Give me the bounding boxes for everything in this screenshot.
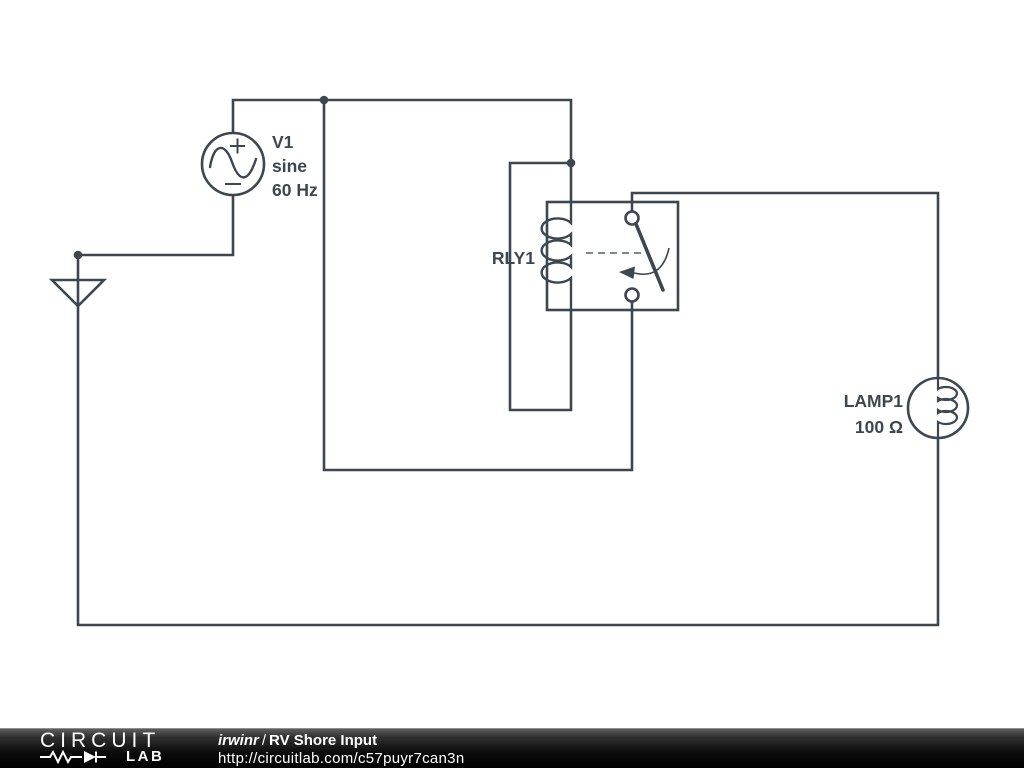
circuitlab-export-page: V1sine60 Hz RLY1 LAMP1100 Ω: [0, 0, 1024, 768]
wire-ground-to-v1: [78, 195, 233, 255]
diode-icon: [84, 751, 96, 763]
lamp-lamp1: [908, 378, 968, 438]
author-name: irwinr: [218, 732, 259, 749]
schematic-canvas: [0, 0, 1024, 728]
voltage-source-v1: [202, 133, 264, 195]
logo-word-circuit: CIRCUIT: [40, 730, 190, 751]
circuitlab-footer: CIRCUIT LAB irwinr/RV Shore Input http:/…: [0, 728, 1024, 768]
circuit-title: RV Shore Input: [269, 732, 377, 749]
switch-terminal-bottom: [626, 289, 639, 302]
relay-rly1: [542, 202, 678, 310]
relay-body: [547, 202, 678, 310]
circuit-url: http://circuitlab.com/c57puyr7can3n: [218, 750, 464, 768]
wire-coil-bottom-loop: [510, 163, 571, 410]
logo-word-lab: LAB: [126, 749, 164, 764]
junction-dot: [567, 159, 576, 168]
resistor-icon: [40, 752, 82, 762]
circuitlab-logo: CIRCUIT LAB: [40, 730, 190, 764]
wire-lamp-to-ground: [78, 255, 938, 625]
attribution-block: irwinr/RV Shore Input http://circuitlab.…: [218, 732, 464, 768]
author-title-separator: /: [259, 732, 269, 749]
switch-arrowhead: [619, 267, 635, 280]
attribution-line: irwinr/RV Shore Input: [218, 732, 464, 750]
junction-dot: [320, 96, 329, 105]
wire-v1-to-coil-top: [233, 100, 571, 202]
switch-blade: [636, 224, 663, 290]
wire-junction-to-switch-bottom: [324, 100, 632, 470]
relay-switch-icon: [619, 212, 669, 302]
junction-dot: [74, 251, 83, 260]
resistor-diode-icon: [40, 750, 126, 764]
